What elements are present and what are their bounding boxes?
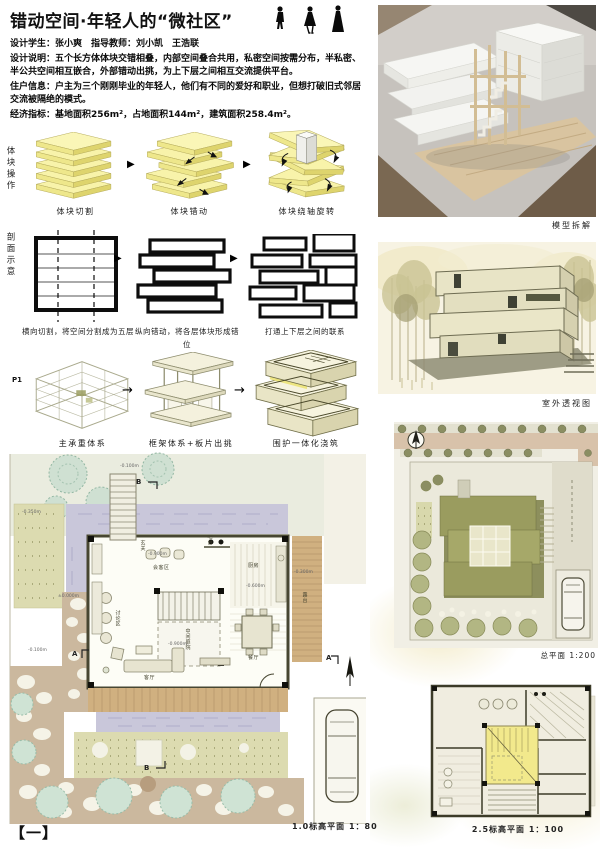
room-label-reception: 会客区 (153, 566, 170, 572)
arrow-right-icon: → (234, 384, 245, 397)
skylight (470, 526, 510, 566)
section-mark-b-top: B (136, 478, 141, 486)
ground-plan-label: 1.0标高平面 1：80 (292, 821, 402, 832)
upper-plan-label: 2.5标高平面 1：100 (440, 824, 596, 835)
structure-diagram-cast (248, 350, 364, 438)
structure-p-label: P1 (12, 376, 22, 384)
model-photo-label: 模型拆解 (480, 220, 592, 231)
parking (314, 698, 366, 824)
room-label-dining: 餐厅 (248, 656, 259, 662)
building-render (408, 266, 592, 380)
structure-step-label-3: 围护一体化浇筑 (248, 438, 364, 449)
water-south (96, 712, 280, 732)
massing-diagram-rotate (254, 130, 360, 202)
info-line-residents: 住户信息：户主为三个刚刚毕业的年轻人，他们有不同的爱好和职业，但想打破旧式邻居交… (10, 81, 368, 108)
structure-diagram-slabs (138, 352, 242, 436)
person-silhouettes-icon (272, 4, 350, 36)
room-label-terrace: 露台 (301, 592, 307, 603)
level-top-stair: -0.100m (120, 464, 139, 469)
section-diagram-interlock (248, 234, 360, 326)
info-line-designers: 设计学生：张小爽 指导教师：刘小凯 王浩联 (10, 38, 368, 52)
info-line-description: 设计说明：五个长方体体块交错相叠，内部空间叠合共用，私密空间按需分布，半私密、半… (10, 53, 368, 80)
kitchen-floor (230, 542, 286, 608)
level-kitchen: -0.600m (246, 584, 265, 589)
central-stair (158, 592, 220, 620)
room-label-kitchen: 厨房 (248, 564, 259, 570)
arrow-right-icon: ▶ (114, 254, 122, 264)
section-mark-a-right: A (326, 654, 331, 662)
level-courtyard: -0.900m (168, 642, 187, 647)
section-caption-3: 打通上下层之间的联系 (250, 326, 360, 339)
core-tower (297, 132, 317, 164)
level-planting-bed: -0.350m (22, 510, 41, 515)
section-mark-b-bottom: B (144, 764, 149, 772)
arrow-right-icon: ▶ (243, 160, 251, 170)
section-caption-2: 纵向错动，将各层体块形成错位 (134, 326, 240, 352)
entry-stair (110, 474, 136, 540)
massing-diagram-stack (24, 132, 124, 200)
massing-step-label-2: 体块错动 (142, 206, 237, 217)
massing-step-label-3: 体块绕轴旋转 (252, 206, 362, 217)
model-right-box (496, 23, 584, 101)
section-side-label: 剖面示意 (4, 232, 16, 278)
page-title: 错动空间·年轻人的“微社区” (10, 7, 233, 32)
ground-floor-plan: 玄关 会客区 吧台 厨房 中间庭院 讨论区 餐厅 客厅 露台 -0.100m -… (8, 452, 366, 824)
section-diagram-stagger (134, 234, 236, 322)
deck-south (88, 688, 288, 712)
exterior-perspective (378, 242, 596, 394)
perspective-label: 室外透视图 (470, 398, 592, 409)
section-diagram-cut (28, 230, 128, 322)
site-plan-label: 总平面 1:200 (486, 650, 596, 661)
car-icon (326, 710, 358, 802)
level-zero: ±0.000m (58, 594, 79, 599)
room-label-entry: 玄关 (139, 540, 145, 551)
room-label-living: 客厅 (144, 676, 155, 682)
room-label-bar: 吧台 (206, 534, 212, 545)
presentation-board: 错动空间·年轻人的“微社区” 设计学生：张小爽 指导教师：刘小凯 王浩联 设计说… (0, 0, 600, 849)
structure-step-label-2: 框架体系+板片出挑 (138, 438, 244, 449)
gravel-court (74, 732, 288, 778)
arrow-right-icon: ▶ (127, 160, 135, 170)
level-entry: -0.900m (148, 552, 167, 557)
level-terrace: -0.300m (294, 570, 313, 575)
massing-side-label: 体块操作 (4, 146, 16, 192)
page-number: 【一】 (10, 822, 58, 843)
north-arrow-icon (346, 656, 354, 686)
structure-step-label-1: 主承重体系 (30, 438, 135, 449)
section-mark-a-left: A (72, 650, 77, 658)
room-label-discussion: 讨论区 (114, 610, 120, 627)
water-pool (66, 504, 288, 534)
project-info: 设计学生：张小爽 指导教师：刘小凯 王浩联 设计说明：五个长方体体块交错相叠，内… (10, 38, 368, 123)
model-photo (378, 5, 596, 217)
arrow-right-icon: ▶ (230, 254, 238, 264)
site-plan (394, 422, 598, 648)
info-line-economics: 经济指标：基地面积256m²，占地面积144m²，建筑面积258.4m²。 (10, 109, 368, 123)
massing-step-label-1: 体块切割 (28, 206, 123, 217)
arrow-right-icon: → (122, 384, 133, 397)
car-icon (562, 578, 584, 630)
living-chairs (479, 699, 517, 709)
section-caption-1: 横向切割，将空间分割成为五层 (22, 326, 134, 339)
upper-floor-plan (426, 682, 596, 822)
massing-diagram-shift (140, 132, 240, 200)
level-path: -0.100m (28, 648, 47, 653)
